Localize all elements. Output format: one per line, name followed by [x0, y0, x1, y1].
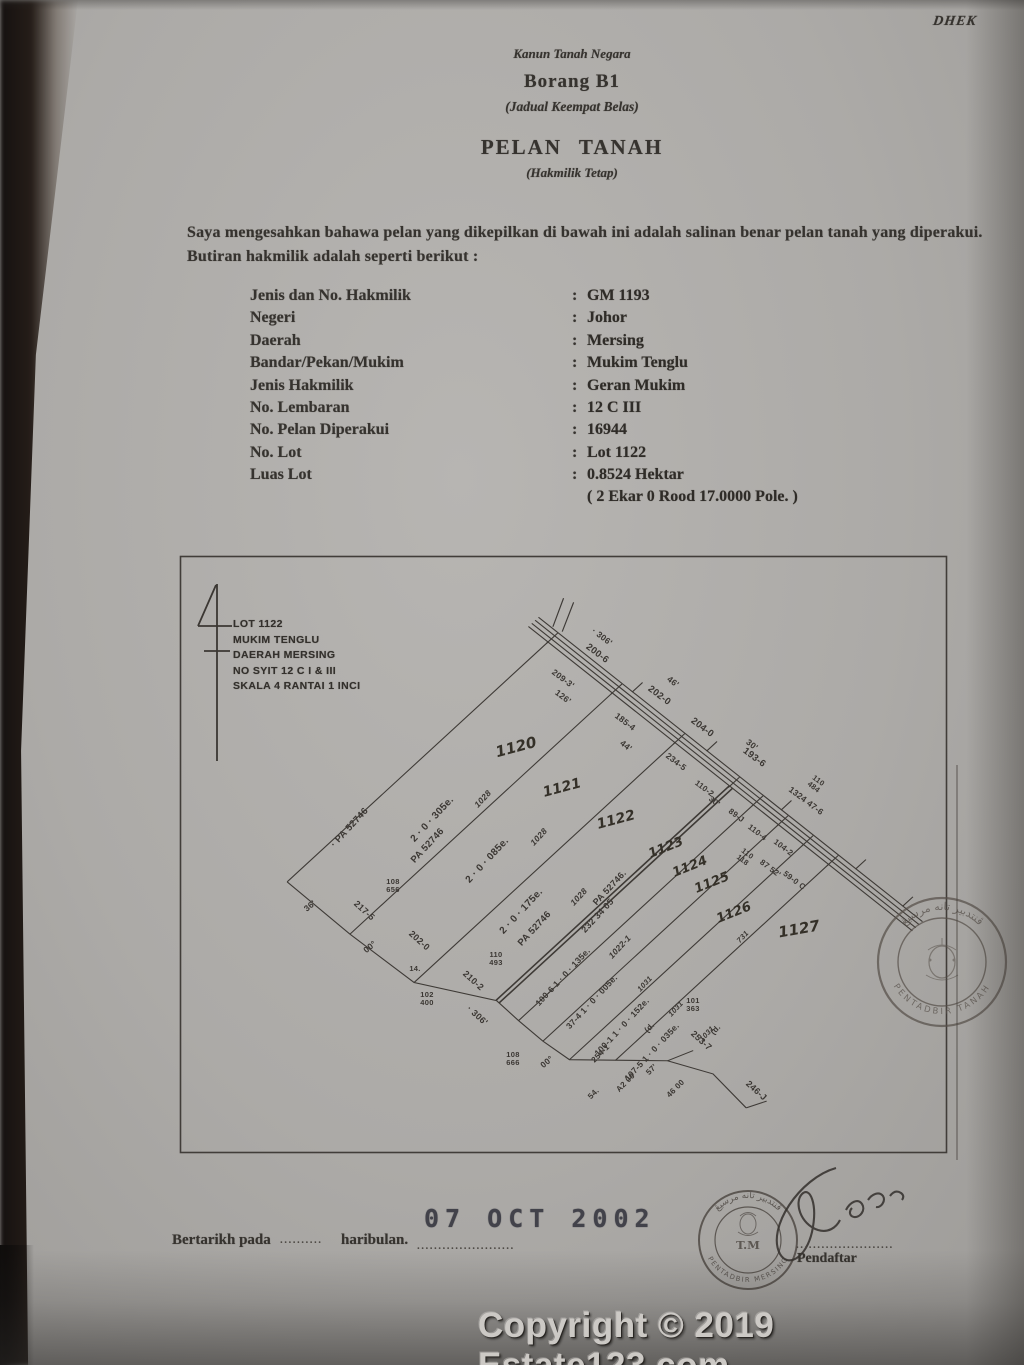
- document-subtitle: (Hakmilik Tetap): [327, 165, 817, 181]
- map-legend-line: NO SYIT 12 C I & III: [233, 664, 360, 680]
- map-dimension-label: 246-J: [744, 1079, 769, 1102]
- field-row: Luas Lot:0.8524 Hektar: [250, 466, 688, 488]
- field-label: No. Lembaran: [250, 399, 572, 417]
- map-dimension-label: 731: [736, 929, 751, 944]
- field-value: 12 C III: [587, 399, 641, 417]
- map-dimension-label: 202-0: [646, 684, 673, 707]
- map-legend: LOT 1122MUKIM TENGLUDAERAH MERSINGNO SYI…: [233, 617, 360, 695]
- dated-on-label: Bertarikh pada: [172, 1232, 271, 1249]
- certification-line1: Saya mengesahkan bahawa pelan yang dikep…: [187, 221, 1019, 245]
- field-row: Jenis dan No. Hakmilik:GM 1193: [250, 287, 688, 309]
- copyright-watermark: Copyright © 2019 Estate123.com: [478, 1306, 1024, 1365]
- field-colon: :: [572, 399, 587, 417]
- paper-shadow-right: [966, 0, 1024, 1365]
- map-dimension-label: 89-J: [727, 807, 746, 824]
- field-value: 16944: [587, 421, 627, 439]
- map-dimension-label: 110 484: [806, 774, 826, 795]
- haribulan-label: haribulan.: [341, 1232, 408, 1249]
- map-dimension-label: 204-0: [689, 716, 716, 739]
- map-dimension-label: 57': [645, 1063, 659, 1077]
- field-label: Daerah: [250, 332, 572, 350]
- frontage-ticks: [547, 633, 839, 866]
- lot-number: 1123: [646, 834, 685, 861]
- document-page: ڤنتدبير تانه مرسيڠ PENTADBIR TANAH T.M ڤ…: [0, 0, 1024, 1365]
- field-value: Mersing: [587, 332, 644, 350]
- map-dimension-label: 193-6: [741, 746, 768, 769]
- lot-number: 1125: [692, 869, 731, 896]
- field-label: Jenis Hakmilik: [250, 377, 572, 395]
- certification-paragraph: Saya mengesahkan bahawa pelan yang dikep…: [187, 221, 1019, 269]
- map-dimension-label: (d.: [643, 1021, 656, 1034]
- map-dimension-label: · 306': [465, 1004, 489, 1027]
- dotted-line-day: ..........: [280, 1234, 323, 1246]
- map-dimension-label: 46 00: [665, 1078, 686, 1099]
- field-label: Bandar/Pekan/Mukim: [250, 354, 572, 372]
- map-dimension-label: 101 363: [686, 997, 699, 1013]
- map-dimension-label: 54.: [587, 1087, 601, 1101]
- schedule-note: (Jadual Keempat Belas): [327, 99, 817, 115]
- map-dimension-label: 46': [665, 675, 680, 690]
- map-dimension-label: 202-0: [407, 929, 432, 952]
- map-dimension-label: 108 656: [386, 878, 399, 894]
- lot-number: 1127: [777, 917, 821, 942]
- map-dimension-label: 102 400: [420, 991, 433, 1007]
- lot-number: 1120: [494, 733, 539, 761]
- lot-number: 1121: [541, 775, 583, 801]
- map-dimension-label: 00°: [362, 939, 378, 955]
- map-dimension-label: 234-5: [664, 751, 688, 772]
- field-value: Mukim Tenglu: [587, 354, 688, 372]
- svg-text:ڤنتدبير تانه مرسيڠ: ڤنتدبير تانه مرسيڠ: [713, 1191, 783, 1213]
- map-dimension-label: 2 · 0 · 085e.: [464, 836, 511, 885]
- field-row: No. Lot:Lot 1122: [250, 444, 688, 466]
- field-value: Geran Mukim: [587, 377, 685, 395]
- dotted-line-month: .......................: [417, 1240, 515, 1252]
- map-dimension-label: 14.: [409, 965, 420, 973]
- lot-number: 1124: [670, 853, 709, 880]
- map-dimension-label: 104-2: [772, 838, 795, 858]
- field-value: 0.8524 Hektar: [587, 466, 684, 484]
- map-dimension-label: A2 00: [615, 1072, 637, 1094]
- map-dimension-label: 110-4: [746, 823, 768, 843]
- map-dimension-label: 1028: [529, 827, 549, 848]
- field-colon: :: [572, 421, 587, 439]
- field-colon: :: [572, 332, 587, 350]
- road-start-stub: [542, 596, 585, 633]
- field-label: No. Lot: [250, 444, 572, 462]
- field-colon: :: [572, 309, 587, 327]
- map-dimension-label: 59-0 C: [781, 870, 807, 892]
- north-arrow-icon: [198, 584, 232, 761]
- map-dimension-label: 110 493: [489, 951, 502, 967]
- paper-shadow-top: [0, 0, 1024, 10]
- field-row: Daerah:Mersing: [250, 332, 688, 354]
- field-colon: :: [572, 287, 587, 305]
- map-dimension-label: 185-4: [613, 711, 637, 732]
- certification-line2: Butiran hakmilik adalah seperti berikut …: [187, 245, 1019, 269]
- paper-crease: [956, 765, 958, 1160]
- rear-boundary-zigzag: [286, 804, 751, 1184]
- map-dimension-label: 30': [707, 795, 721, 809]
- map-dimension-label: 126': [553, 688, 572, 706]
- map-dimension-label: 1028: [473, 789, 493, 810]
- field-label: Jenis dan No. Hakmilik: [250, 287, 572, 305]
- field-colon: :: [572, 354, 587, 372]
- map-dimension-label: 00°: [539, 1054, 555, 1070]
- map-dimension-label: 254-1: [590, 1043, 611, 1064]
- field-colon: :: [572, 444, 587, 462]
- map-dimension-label: 1031: [667, 1000, 685, 1018]
- field-row: No. Pelan Diperakui:16944: [250, 421, 688, 443]
- map-dimension-label: 87 52': [758, 859, 782, 880]
- field-label: Negeri: [250, 309, 572, 327]
- field-row: No. Lembaran:12 C III: [250, 399, 688, 421]
- map-legend-line: LOT 1122: [233, 617, 360, 633]
- registrar-crest-icon: [738, 1213, 758, 1236]
- map-dimension-label: 36': [302, 899, 317, 914]
- field-colon: :: [572, 377, 587, 395]
- field-label: Luas Lot: [250, 466, 572, 484]
- field-row: Negeri:Johor: [250, 309, 688, 331]
- field-colon: :: [572, 466, 587, 484]
- registrar-label: Pendaftar: [797, 1251, 857, 1267]
- act-name: Kanun Tanah Negara: [327, 46, 817, 62]
- map-dimension-label: 1031: [636, 975, 654, 993]
- field-label: No. Pelan Diperakui: [250, 421, 572, 439]
- map-legend-line: DAERAH MERSING: [233, 648, 360, 664]
- map-plan-svg: ڤنتدبير تانه مرسيڠ PENTADBIR TANAH T.M ڤ…: [0, 0, 1024, 1365]
- field-row: Jenis Hakmilik:Geran Mukim: [250, 377, 688, 399]
- map-dimension-label: 44': [618, 739, 633, 754]
- map-dimension-label: 209-3': [550, 668, 576, 691]
- map-dimension-label: 110 118: [735, 847, 755, 867]
- date-stamp: 07 OCT 2002: [424, 1204, 656, 1233]
- map-legend-line: SKALA 4 RANTAI 1 INCI: [233, 679, 360, 695]
- map-legend-line: MUKIM TENGLU: [233, 633, 360, 649]
- map-dimension-label: 1028: [569, 887, 589, 908]
- field-row: Bandar/Pekan/Mukim:Mukim Tenglu: [250, 354, 688, 376]
- field-value: GM 1193: [587, 287, 650, 305]
- map-dimension-label: 217-5: [352, 899, 377, 922]
- fields-list: Jenis dan No. Hakmilik:GM 1193Negeri:Joh…: [250, 287, 688, 489]
- form-number: Borang B1: [327, 71, 817, 93]
- map-dimension-label: 37-4 1 · 0 · 005e.: [565, 973, 620, 1031]
- map-dimension-label: · PA 52746: [329, 806, 370, 849]
- field-value: Lot 1122: [587, 444, 646, 462]
- map-dimension-label: 210-2: [461, 969, 486, 992]
- area-imperial-note: ( 2 Ekar 0 Rood 17.0000 Pole. ): [587, 488, 798, 506]
- document-title: PELAN TANAH: [327, 135, 817, 160]
- cadastral-lines: [266, 594, 969, 1189]
- lot-number: 1122: [595, 807, 637, 833]
- registrar-jawi-text: ڤنتدبير تانه مرسيڠ: [713, 1191, 783, 1213]
- map-dimension-label: 108 666: [506, 1051, 519, 1067]
- lot-boundaries: [286, 642, 829, 1106]
- map-dimension-label: 100-6 1 · 0 · 135e.: [534, 946, 592, 1007]
- lot-number: 1126: [714, 899, 753, 926]
- field-value: Johor: [587, 309, 627, 327]
- stamp-crest-icon: [926, 938, 958, 980]
- corner-handwriting: DHEK: [932, 14, 978, 30]
- photo-dark-edge: [0, 0, 78, 1365]
- signature-dotted-line: .......................: [796, 1239, 894, 1251]
- map-dimension-label: 1022-1: [607, 934, 633, 961]
